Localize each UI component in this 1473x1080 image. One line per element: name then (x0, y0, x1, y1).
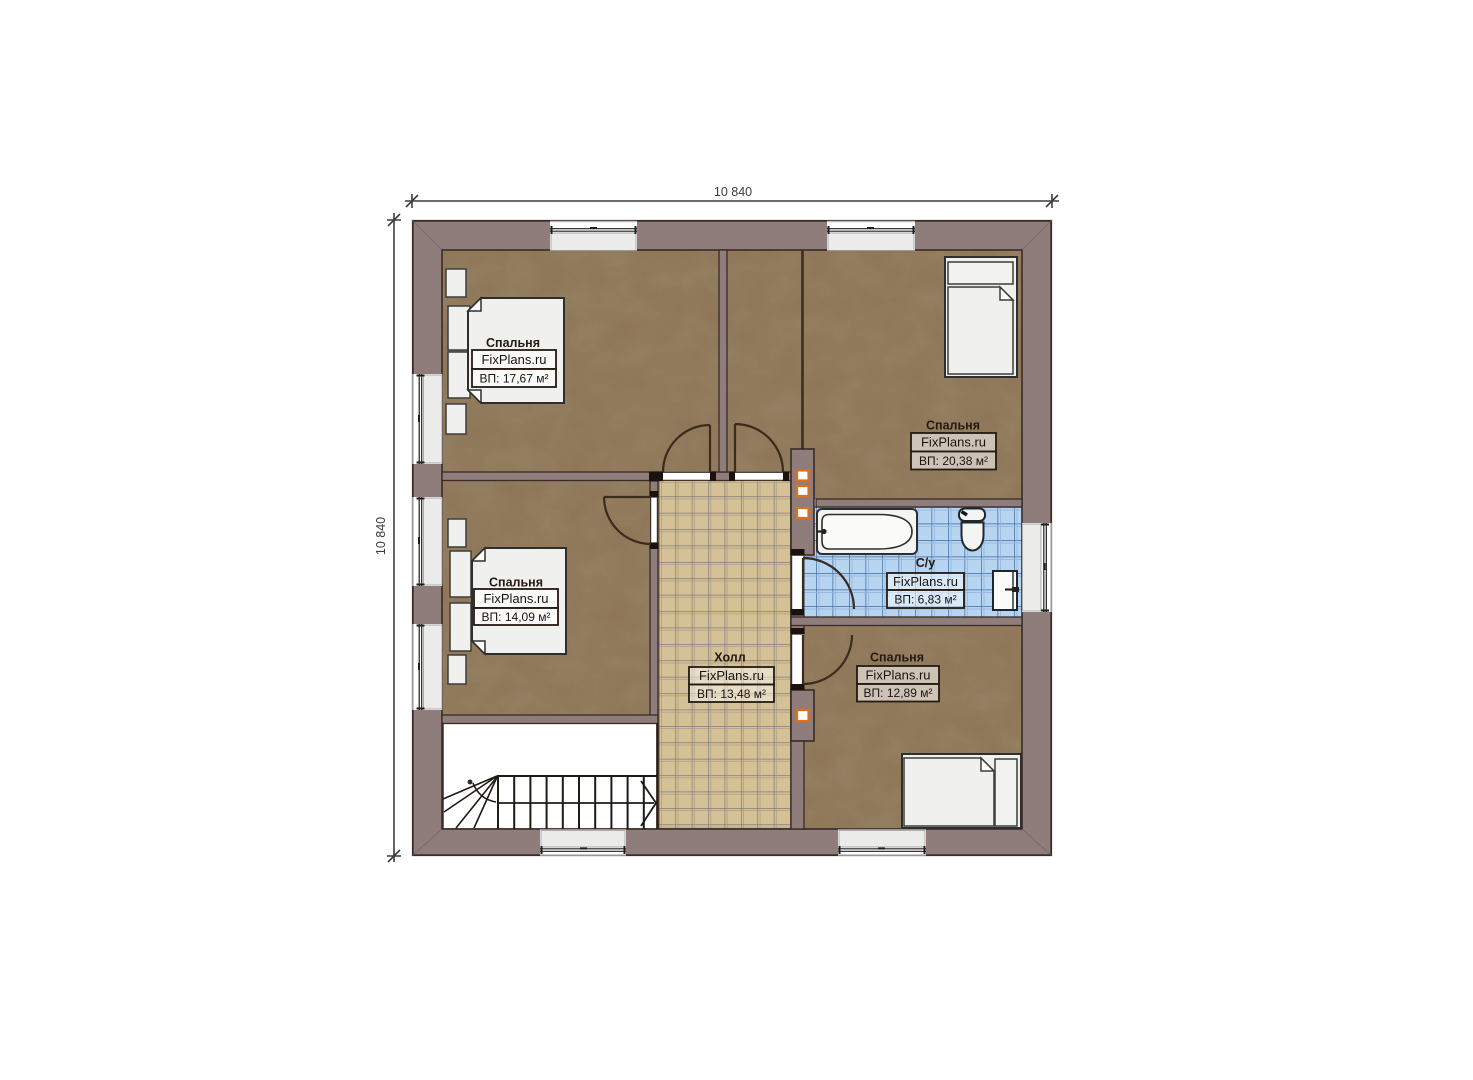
svg-text:FixPlans.ru: FixPlans.ru (893, 574, 958, 589)
svg-text:FixPlans.ru: FixPlans.ru (483, 591, 548, 606)
svg-text:FixPlans.ru: FixPlans.ru (865, 668, 930, 683)
svg-text:FixPlans.ru: FixPlans.ru (921, 435, 986, 450)
svg-text:С/у: С/у (916, 556, 936, 570)
svg-text:ВП: 6,83 м²: ВП: 6,83 м² (894, 593, 956, 607)
svg-text:10 840: 10 840 (714, 185, 752, 199)
svg-text:Спальня: Спальня (486, 336, 540, 350)
svg-text:ВП: 14,09 м²: ВП: 14,09 м² (482, 610, 551, 624)
svg-text:Спальня: Спальня (870, 651, 924, 665)
svg-text:ВП: 17,67 м²: ВП: 17,67 м² (480, 372, 549, 386)
svg-text:Холл: Холл (714, 651, 745, 665)
svg-text:ВП: 13,48 м²: ВП: 13,48 м² (697, 687, 766, 701)
svg-text:Спальня: Спальня (489, 576, 543, 590)
svg-text:ВП: 20,38 м²: ВП: 20,38 м² (919, 454, 988, 468)
svg-text:FixPlans.ru: FixPlans.ru (699, 668, 764, 683)
svg-text:FixPlans.ru: FixPlans.ru (481, 352, 546, 367)
svg-text:ВП: 12,89 м²: ВП: 12,89 м² (864, 686, 933, 700)
svg-text:Спальня: Спальня (926, 419, 980, 433)
svg-text:10 840: 10 840 (374, 517, 388, 555)
